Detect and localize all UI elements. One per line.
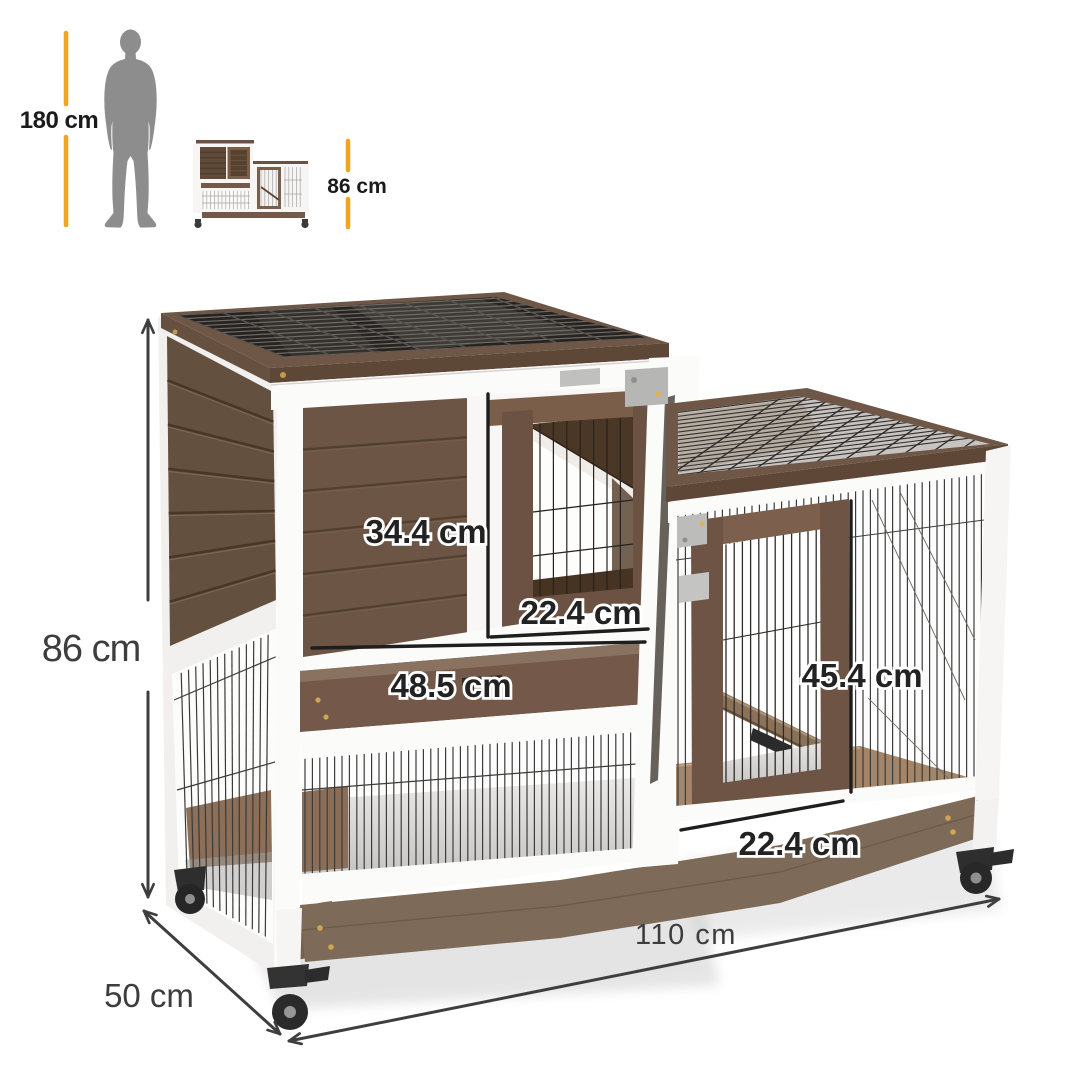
svg-text:180 cm: 180 cm xyxy=(20,107,98,134)
svg-text:48.5 cm: 48.5 cm xyxy=(390,667,511,704)
svg-text:45.4 cm: 45.4 cm xyxy=(801,657,922,694)
svg-text:22.4 cm: 22.4 cm xyxy=(738,825,859,862)
svg-text:86 cm: 86 cm xyxy=(42,628,140,670)
svg-text:86 cm: 86 cm xyxy=(327,175,387,198)
svg-text:34.4 cm: 34.4 cm xyxy=(365,513,486,550)
svg-text:22.4 cm: 22.4 cm xyxy=(520,594,641,631)
svg-text:50 cm: 50 cm xyxy=(104,977,194,1014)
svg-text:110 cm: 110 cm xyxy=(635,919,737,951)
